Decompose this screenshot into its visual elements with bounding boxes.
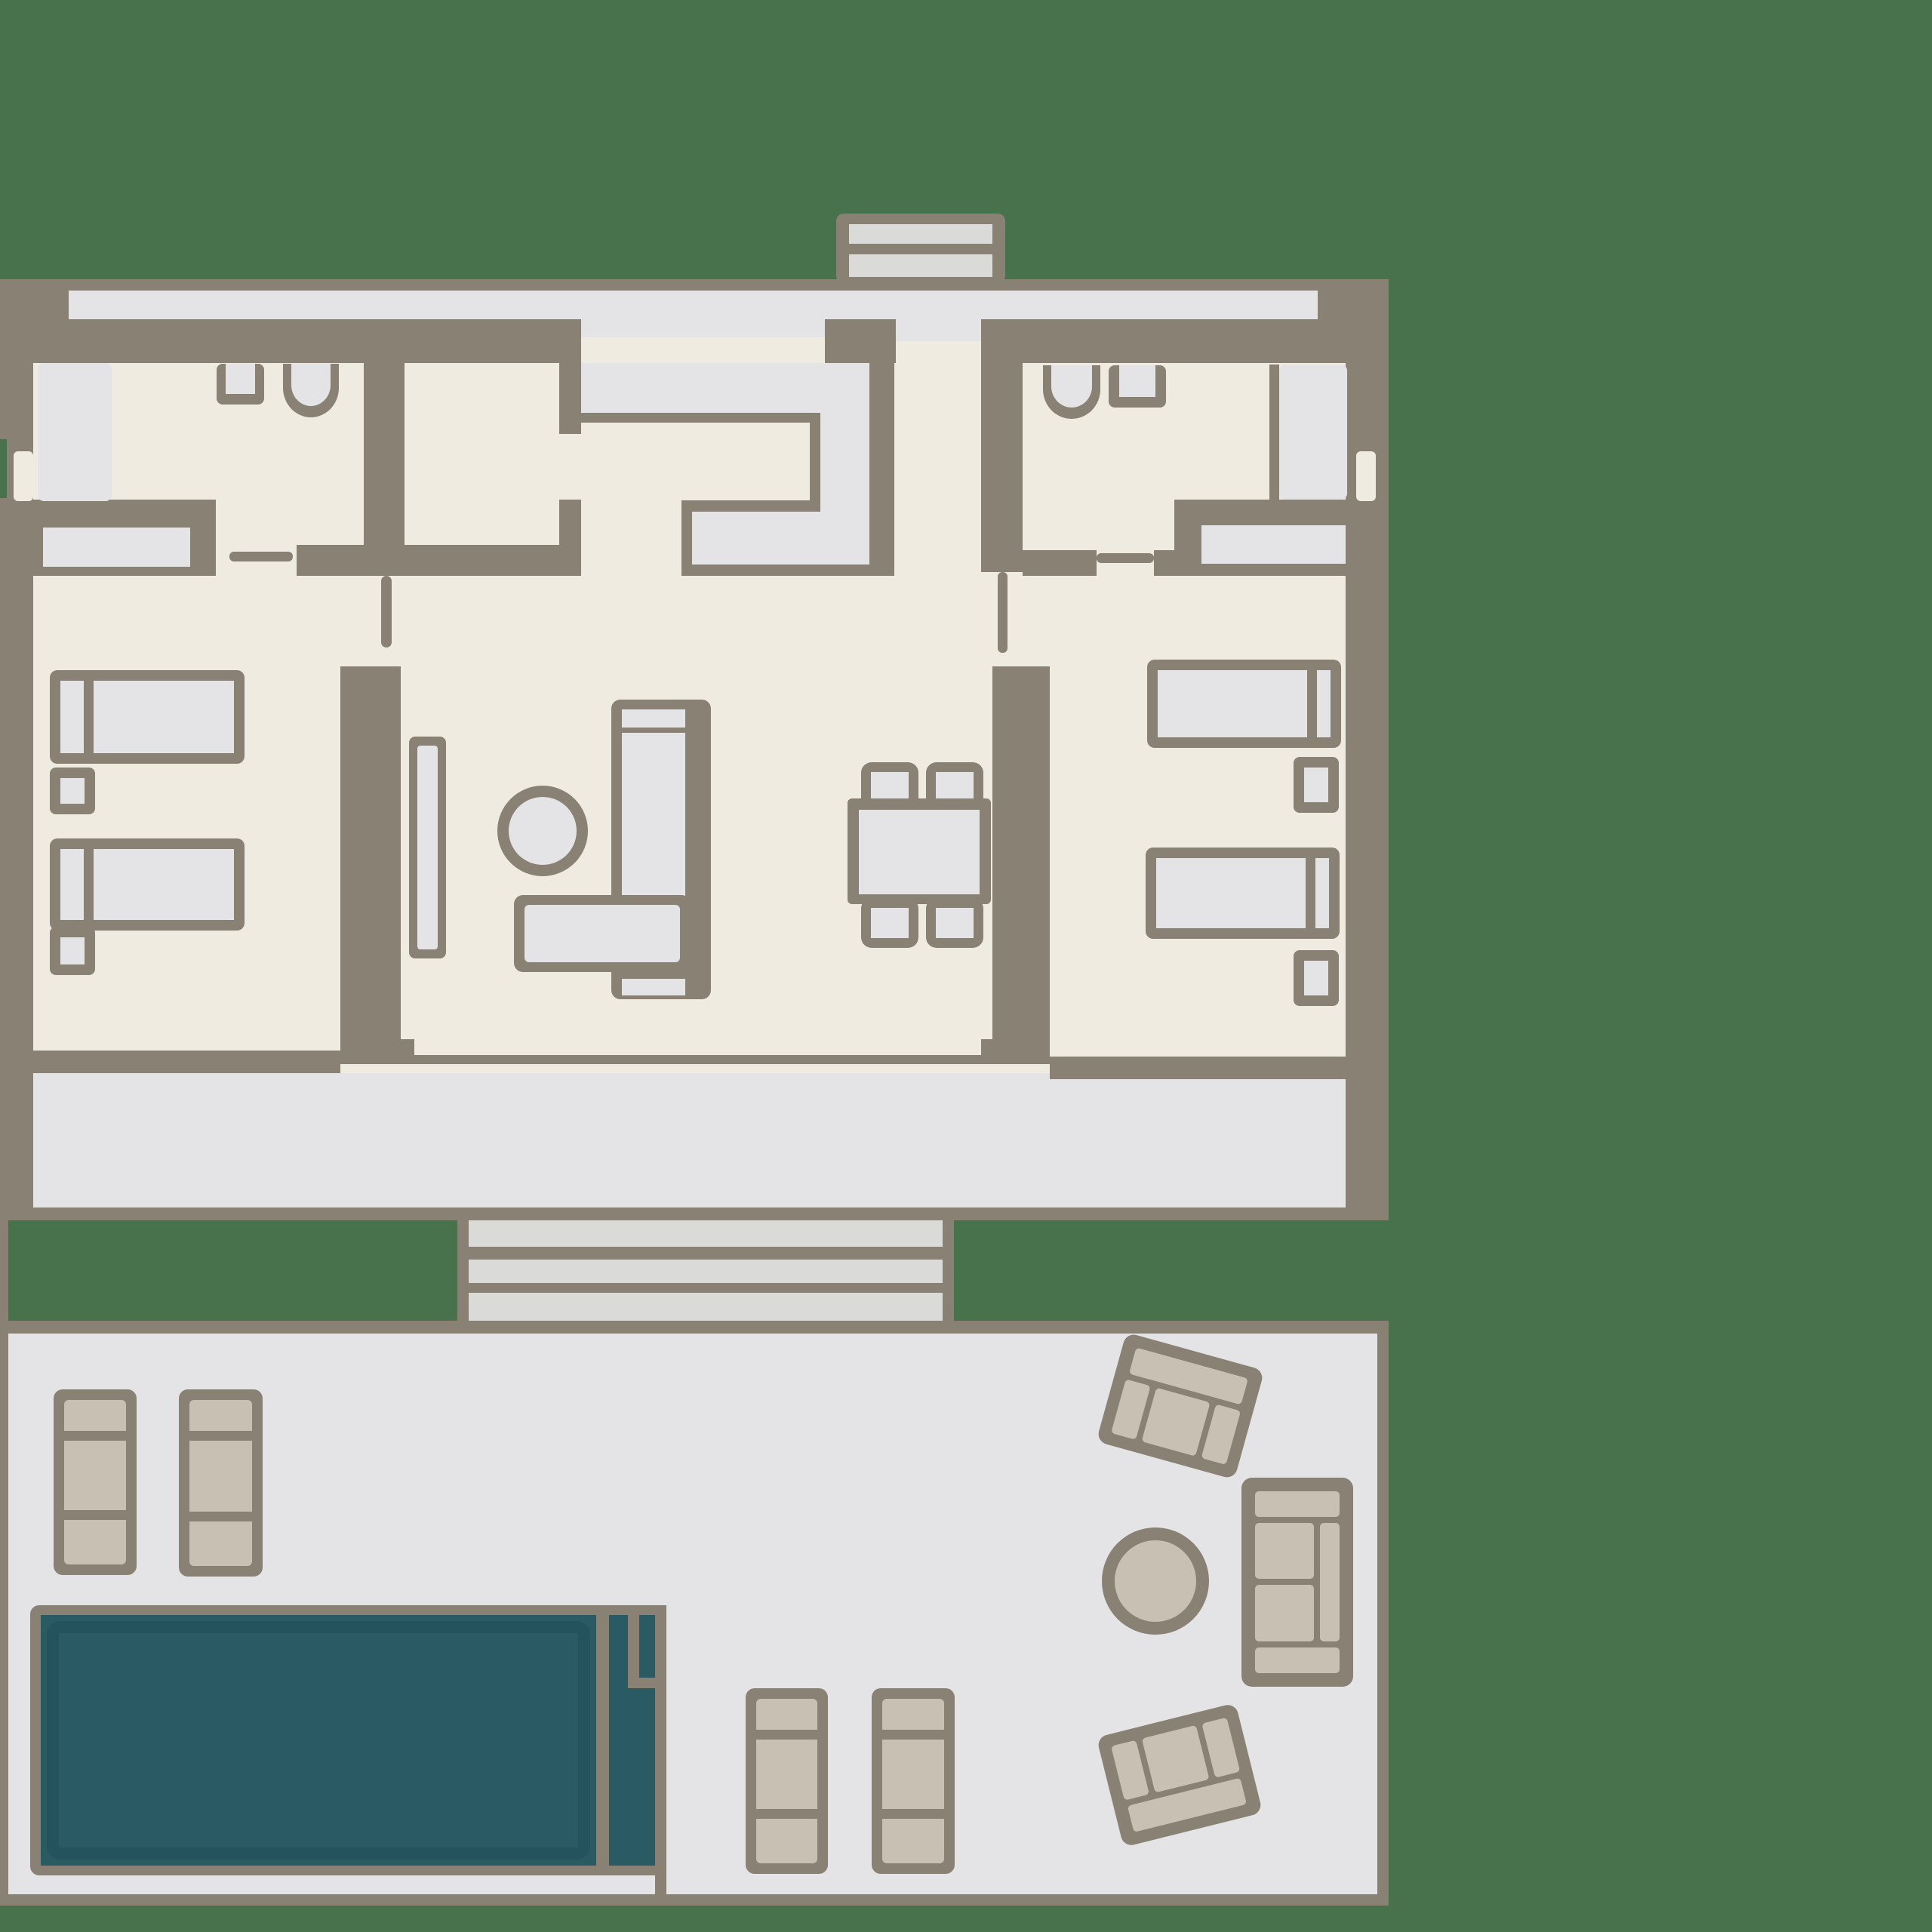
sunbed-divider — [756, 1809, 817, 1819]
closet-wall-upper — [559, 363, 581, 434]
toilet-right-bowl — [1051, 365, 1092, 408]
bed-right-2-pillow-line — [1306, 858, 1315, 928]
toilet-left-bowl — [291, 364, 331, 406]
pool — [30, 1605, 666, 1906]
entry-inner-wall-right — [810, 413, 820, 511]
entry-zone-bottom — [692, 512, 820, 565]
outdoor-sofa-back — [1320, 1523, 1340, 1641]
entry-zone-right — [820, 363, 869, 565]
east-wall — [1346, 279, 1389, 1220]
corridor-gap-walkway — [896, 319, 981, 341]
dining-table-top — [859, 810, 980, 894]
nightstand-left-1-top — [60, 778, 85, 804]
sunbed-divider — [189, 1512, 252, 1521]
shower-right — [1279, 365, 1347, 500]
bed-left-2-pillow-line — [84, 849, 94, 920]
entrance-step-bar — [849, 254, 992, 277]
round-table-top — [1115, 1540, 1196, 1622]
corridor-threshold — [896, 341, 981, 363]
wall-bath2-corridor — [981, 319, 1023, 572]
sunbed-cushion — [882, 1699, 944, 1863]
pool-ladder-wall-foot — [628, 1678, 655, 1688]
floor-plan-canvas — [0, 0, 1932, 1932]
step-bar — [469, 1293, 943, 1321]
hall-wall — [297, 545, 581, 576]
wardrobe-left — [43, 528, 190, 567]
outdoor-sofa-cushion — [1255, 1585, 1314, 1641]
sunbed-cushion — [756, 1699, 817, 1863]
door-leaf-bedroom-right — [998, 572, 1008, 653]
bed-right-1-mattress — [1158, 670, 1331, 737]
sofa-seat — [622, 733, 685, 898]
east-window-notch — [1356, 451, 1376, 501]
nightstand-left-2-top — [60, 937, 85, 964]
nightstand-right-2-top — [1304, 961, 1328, 995]
round-stool-top — [509, 797, 577, 865]
pool-ladder-wall — [628, 1615, 639, 1688]
shower2-partition — [1269, 365, 1279, 500]
bath2-south-wall-a — [1023, 550, 1097, 576]
wardrobe-right — [1201, 525, 1346, 564]
garden-inset-left — [8, 1220, 457, 1321]
step-bar — [469, 1220, 943, 1247]
pool-water-main — [41, 1615, 596, 1866]
bedroom-right-south-wall — [1050, 1057, 1346, 1079]
terrace-west-wall — [0, 1220, 8, 1906]
terrace-east-wall — [1377, 1334, 1389, 1906]
door-leaf-bath2 — [1097, 553, 1154, 563]
step-bar — [469, 1260, 943, 1283]
sunbed-divider — [882, 1809, 944, 1819]
bedroom-left-south-wall — [33, 1051, 340, 1073]
entry-wall-piece — [825, 319, 896, 360]
nightstand-right-1-top — [1304, 768, 1328, 802]
chaise-table-top — [525, 905, 680, 962]
west-wall — [0, 279, 33, 1220]
bed-right-1-pillow-line — [1307, 670, 1317, 737]
south-wall — [0, 1207, 1389, 1220]
entry-closing-wall — [681, 565, 894, 576]
living-window-wall — [401, 1055, 992, 1064]
shower-left — [38, 363, 112, 501]
wall-bath1-hall — [364, 319, 405, 576]
outdoor-sofa-cushion — [1255, 1523, 1314, 1579]
entry-threshold — [581, 337, 825, 363]
north-walkway — [69, 291, 1318, 319]
garden-inset-right — [954, 1220, 1389, 1321]
bed-left-1-pillow-line — [84, 681, 94, 753]
sunbed-divider — [756, 1730, 817, 1740]
door-leaf-bath1 — [229, 552, 293, 561]
west-window-notch — [14, 451, 33, 501]
sunbed-cushion — [189, 1400, 252, 1566]
entry-inner-wall-bottom — [681, 500, 820, 512]
sink-left-basin — [226, 364, 255, 394]
door-leaf-bedroom-left — [381, 576, 392, 648]
entrance-step-bar — [849, 224, 992, 244]
wall-stub-right — [992, 666, 1050, 1064]
pool-right-wall — [655, 1605, 666, 1906]
wall-insets-green — [0, 439, 7, 498]
outdoor-sofa-armrest-bottom — [1255, 1647, 1340, 1673]
sunbed-divider — [64, 1431, 126, 1441]
sofa-armrest-bottom — [622, 979, 685, 995]
garden-right-border — [943, 1321, 1389, 1334]
sunbed-divider — [189, 1431, 252, 1441]
garden-left-border — [8, 1321, 469, 1334]
bed-right-2-mattress — [1156, 858, 1329, 928]
sunbed-cushion — [64, 1400, 126, 1564]
west-window-exterior-gap — [0, 439, 7, 498]
sunbed-divider — [882, 1730, 944, 1740]
closet-wall-lower — [559, 500, 581, 545]
outdoor-sofa-armrest-top — [1255, 1491, 1340, 1517]
sunbed-divider — [64, 1510, 126, 1520]
sink-right-basin — [1119, 365, 1155, 397]
entry-inner-wall-top — [581, 413, 820, 423]
corridor-wall — [869, 360, 894, 576]
terrace-south-wall — [0, 1894, 1389, 1906]
dining-chair-seat — [871, 908, 909, 938]
wall-stub-left — [340, 666, 401, 1064]
sideboard-top — [417, 746, 438, 949]
entry-gap-walkway — [581, 319, 825, 337]
sofa-armrest-top — [622, 709, 685, 728]
dining-chair-seat — [936, 908, 974, 938]
